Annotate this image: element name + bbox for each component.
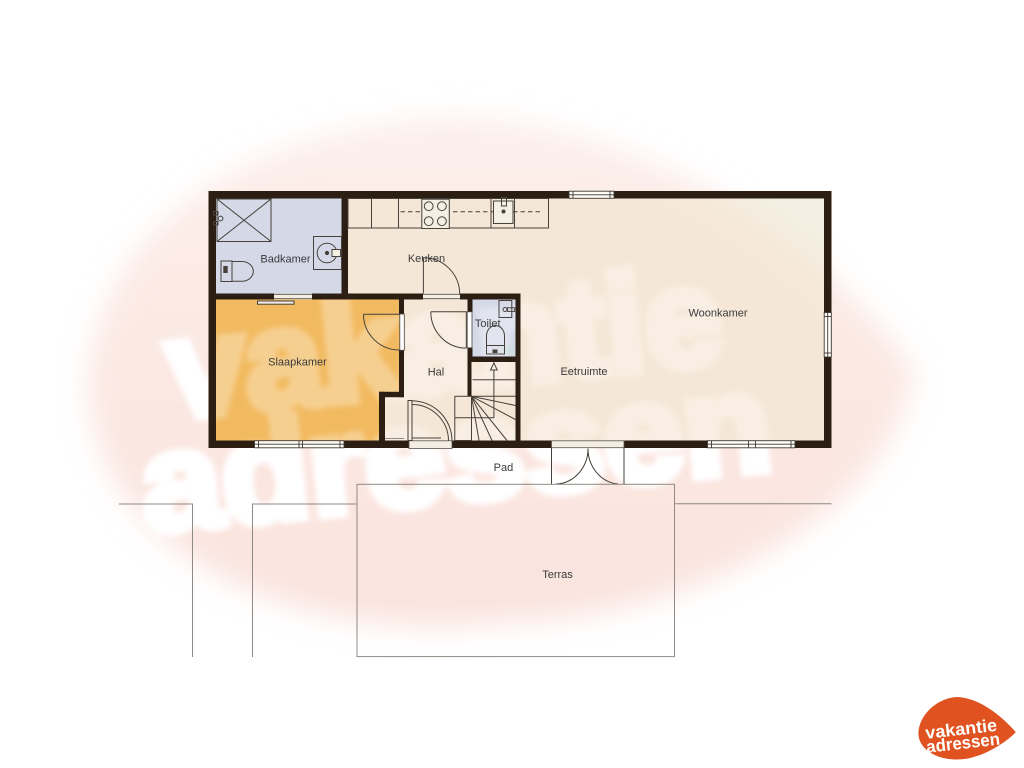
svg-text:Hal: Hal [428,366,445,378]
svg-text:Eetruimte: Eetruimte [560,366,607,378]
svg-text:Toilet: Toilet [475,318,501,330]
svg-text:Badkamer: Badkamer [260,253,310,265]
svg-text:Slaapkamer: Slaapkamer [268,356,327,368]
svg-text:Terras: Terras [542,569,573,581]
svg-text:Pad: Pad [494,462,514,474]
svg-text:Keuken: Keuken [408,253,445,265]
svg-text:Woonkamer: Woonkamer [688,307,747,319]
